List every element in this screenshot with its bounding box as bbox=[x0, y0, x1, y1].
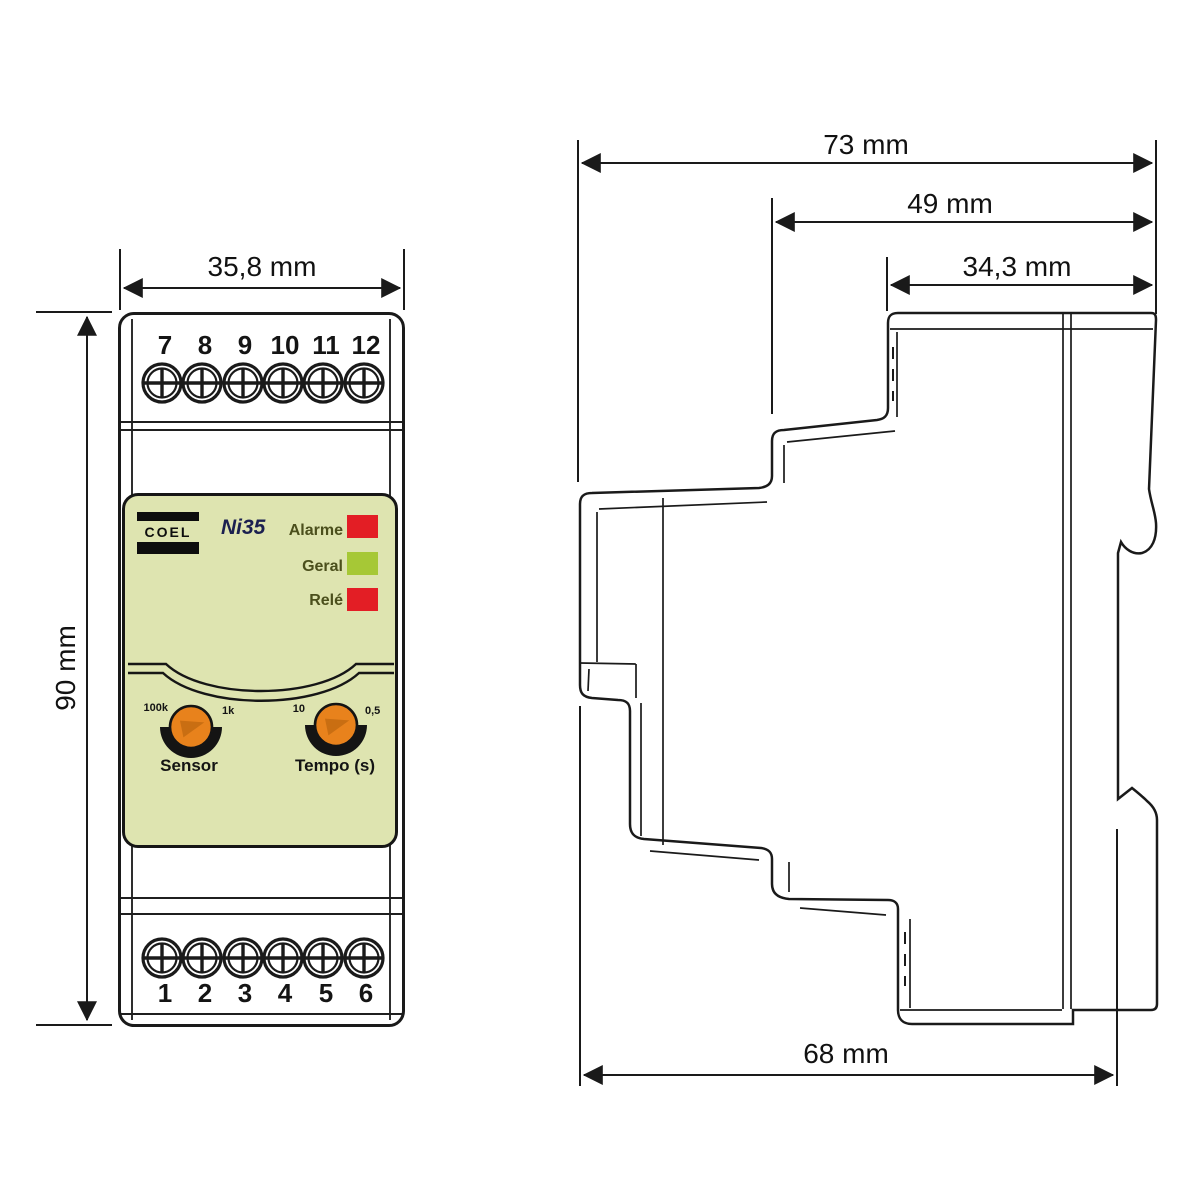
front-panel: COEL Ni35 Alarme Geral Relé 100k 1k 10 0… bbox=[122, 493, 398, 848]
terminal-number: 10 bbox=[266, 331, 304, 359]
terminal-number: 6 bbox=[347, 979, 385, 1007]
tempo-scale-max: 0,5 bbox=[365, 705, 399, 718]
depth-top-dim-label: 34,3 mm bbox=[922, 250, 1112, 284]
side-profile-outline bbox=[580, 313, 1157, 1024]
geral-led-indicator bbox=[347, 552, 378, 575]
bottom-cover-inner-line bbox=[121, 913, 402, 915]
side-profile-inner-lines bbox=[580, 314, 1153, 1010]
top-cover-inner-line bbox=[121, 429, 402, 431]
led-label-alarme: Alarme bbox=[243, 522, 343, 540]
dim-depth-body bbox=[580, 706, 1117, 1086]
terminal-number: 2 bbox=[186, 979, 224, 1007]
terminal-number: 12 bbox=[347, 331, 385, 359]
logo-bar-top bbox=[137, 512, 199, 521]
led-label-rele: Relé bbox=[243, 592, 343, 610]
technical-drawing: 7 8 9 10 11 12 COEL Ni35 Alarme Geral Re… bbox=[0, 0, 1200, 1200]
depth-total-dim-label: 73 mm bbox=[781, 128, 951, 162]
alarme-led-indicator bbox=[347, 515, 378, 538]
depth-upper-dim-label: 49 mm bbox=[865, 187, 1035, 221]
terminal-number: 5 bbox=[307, 979, 345, 1007]
bottom-inner-line bbox=[121, 1013, 402, 1015]
sensor-knob-label: Sensor bbox=[139, 756, 239, 774]
led-label-geral: Geral bbox=[243, 558, 343, 576]
terminal-number: 1 bbox=[146, 979, 184, 1007]
side-view-profile bbox=[580, 313, 1157, 1024]
front-view-device: 7 8 9 10 11 12 COEL Ni35 Alarme Geral Re… bbox=[118, 312, 405, 1027]
top-cover-edge-line bbox=[121, 421, 402, 423]
brand-logo: COEL bbox=[137, 512, 199, 554]
terminal-number: 3 bbox=[226, 979, 264, 1007]
terminal-number: 9 bbox=[226, 331, 264, 359]
dim-depth-upper bbox=[772, 198, 1152, 414]
brand-name: COEL bbox=[137, 521, 199, 545]
front-height-dim-label: 90 mm bbox=[22, 623, 110, 713]
sensor-scale-min: 100k bbox=[128, 702, 168, 715]
bottom-cover-edge-line bbox=[121, 897, 402, 899]
terminal-number: 8 bbox=[186, 331, 224, 359]
tempo-scale-min: 10 bbox=[275, 703, 305, 716]
terminal-number: 11 bbox=[307, 331, 345, 359]
side-profile-vent-dashes bbox=[893, 347, 1118, 986]
front-width-dim-label: 35,8 mm bbox=[177, 250, 347, 284]
depth-body-dim-label: 68 mm bbox=[761, 1037, 931, 1071]
terminal-number: 4 bbox=[266, 979, 304, 1007]
rele-led-indicator bbox=[347, 588, 378, 611]
sensor-scale-max: 1k bbox=[222, 705, 250, 718]
logo-bar-bottom bbox=[137, 545, 199, 554]
tempo-knob-label: Tempo (s) bbox=[285, 756, 385, 774]
terminal-number: 7 bbox=[146, 331, 184, 359]
